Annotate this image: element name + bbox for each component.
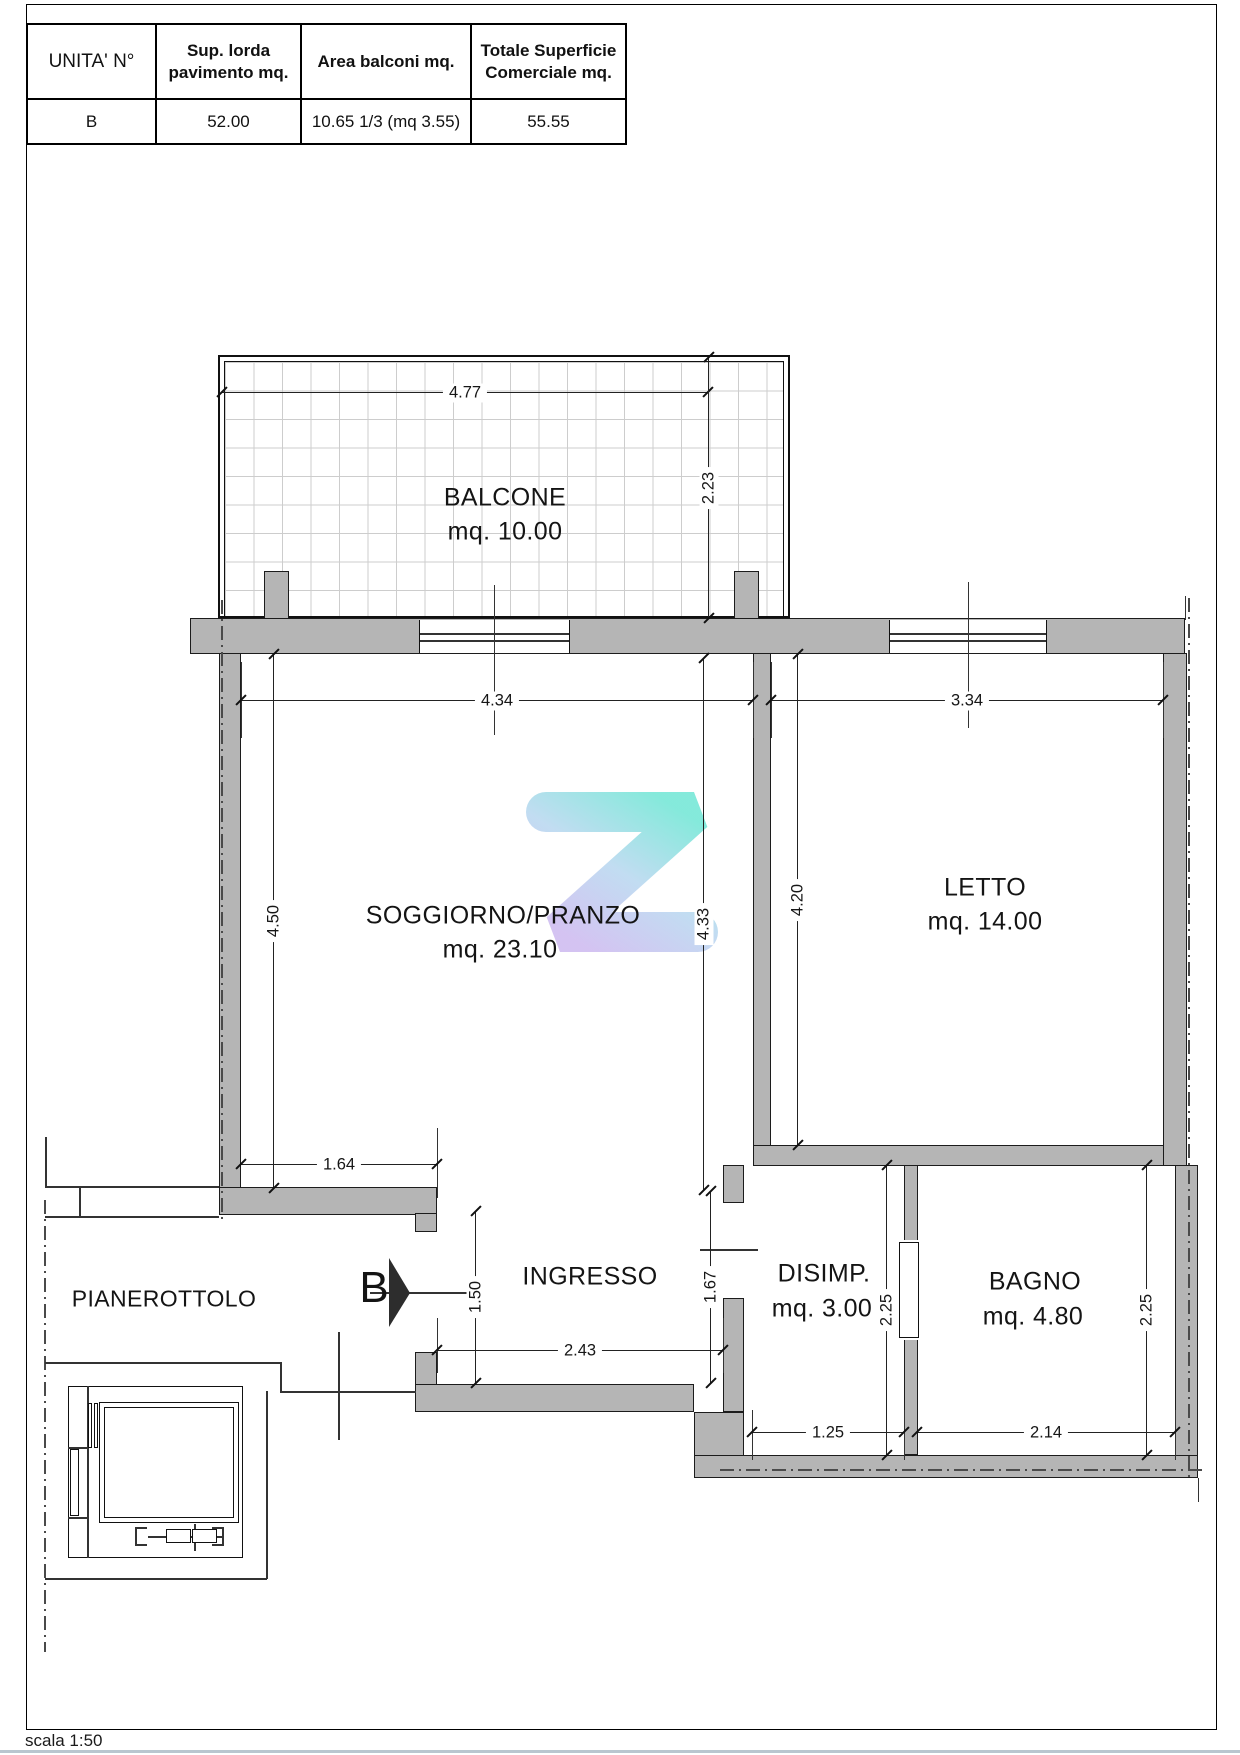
room-label-pianerottolo: PIANEROTTOLO xyxy=(72,1286,257,1313)
dim-soggiorno-height-right: 4.33 xyxy=(703,658,704,1190)
screen-bottom-edge xyxy=(0,1750,1240,1753)
dim-label-balcony-width: 4.77 xyxy=(443,383,487,402)
dim-bagno-width: 2.14 xyxy=(917,1432,1175,1433)
wall-soggiorno-south xyxy=(219,1187,437,1215)
table-data-row: B 52.00 10.65 1/3 (mq 3.55) 55.55 xyxy=(27,99,626,144)
dim-label-ingresso-width: 2.43 xyxy=(558,1341,602,1360)
cell-floor-area: 52.00 xyxy=(156,99,301,144)
elevator-shaft-left-tick-b xyxy=(68,1517,87,1519)
dim-label-ingresso-height: 1.67 xyxy=(701,1266,720,1308)
scale-note: scala 1:50 xyxy=(25,1731,103,1751)
col-header-floor-area: Sup. lorda pavimento mq. xyxy=(156,24,301,99)
elevator-bracket-right-bottom xyxy=(212,1544,224,1546)
dim-soggiorno-width: 4.34 xyxy=(241,700,753,701)
elevator-car-inner xyxy=(104,1407,234,1518)
dim-label-bagno-width: 2.14 xyxy=(1024,1423,1068,1442)
room-label-bagno: BAGNO xyxy=(989,1268,1081,1297)
elevator-rail-1 xyxy=(88,1403,92,1448)
cell-balcony-area: 10.65 1/3 (mq 3.55) xyxy=(301,99,471,144)
dim-label-bagno-height: 2.25 xyxy=(1137,1289,1156,1331)
dim-label-letto-width: 3.34 xyxy=(945,691,989,710)
ext-line-243-left xyxy=(437,1318,438,1373)
dim-label-balcony-depth: 2.23 xyxy=(699,466,718,508)
col-header-total-area: Totale Superficie Comerciale mq. xyxy=(471,24,626,99)
entrance-arrow-icon xyxy=(389,1258,410,1327)
dim-label-soggiorno-width: 4.34 xyxy=(475,691,519,710)
boundary-line-south xyxy=(720,1469,1205,1471)
dim-disimp-height: 2.25 xyxy=(886,1165,887,1455)
elevator-counterweight xyxy=(70,1449,79,1516)
wall-south xyxy=(694,1455,1198,1478)
dim-ingresso-width: 2.43 xyxy=(437,1350,723,1351)
room-label-ingresso: INGRESSO xyxy=(522,1263,657,1292)
elevator-door-panel-2 xyxy=(192,1529,217,1543)
boundary-line-east xyxy=(1188,598,1190,1482)
dim-label-soggiorno-height-left: 4.50 xyxy=(264,900,283,942)
dim-label-soggiorno-height-right: 4.33 xyxy=(694,903,713,945)
wall-step-corner xyxy=(694,1412,744,1456)
landing-edge-left-stub xyxy=(45,1137,47,1187)
dim-balcony-width: 4.77 xyxy=(222,392,708,393)
table-header-row: UNITA' N° Sup. lorda pavimento mq. Area … xyxy=(27,24,626,99)
dim-label-disimp-height: 2.25 xyxy=(877,1289,896,1331)
wall-letto-south xyxy=(753,1145,1187,1166)
landing-edge-top-b xyxy=(45,1216,219,1218)
cell-total-area: 55.55 xyxy=(471,99,626,144)
dim-label-disimp-width: 1.25 xyxy=(806,1423,850,1442)
dim-balcony-depth: 2.23 xyxy=(708,357,709,618)
dim-soggiorno-height-left: 4.50 xyxy=(273,654,274,1188)
dim-label-letto-height: 4.20 xyxy=(788,878,807,920)
boundary-line-landing xyxy=(44,1200,46,1652)
ext-line-125-right xyxy=(904,1410,905,1460)
wall-north xyxy=(190,618,1185,654)
dim-disimp-width: 1.25 xyxy=(752,1432,904,1433)
col-header-unit: UNITA' N° xyxy=(27,24,156,99)
corner-extension-ne xyxy=(1185,596,1186,620)
room-area-bagno: mq. 4.80 xyxy=(983,1303,1083,1332)
room-label-balcone: BALCONE xyxy=(444,484,566,513)
corner-extension-se xyxy=(1198,1478,1199,1502)
wall-east-upper xyxy=(1163,653,1187,1166)
cell-unit-id: B xyxy=(27,99,156,144)
wall-soggiorno-letto xyxy=(753,653,771,1166)
elevator-bracket-left-bottom xyxy=(135,1544,147,1546)
balcony-pillar-left xyxy=(264,571,289,619)
dim-letto-height: 4.20 xyxy=(797,654,798,1145)
ext-line-243-right xyxy=(723,1318,724,1373)
room-area-disimp: mq. 3.00 xyxy=(772,1295,872,1324)
room-label-letto: LETTO xyxy=(944,874,1026,903)
room-area-soggiorno: mq. 23.10 xyxy=(443,936,558,965)
landing-edge-top-a xyxy=(45,1186,219,1188)
bagno-door-leaf xyxy=(899,1242,919,1338)
wall-entrance-jamb-top xyxy=(415,1213,437,1232)
entrance-unit-label: B xyxy=(359,1263,388,1313)
wall-ingresso-south xyxy=(415,1384,694,1412)
landing-edge-bottom-a xyxy=(45,1362,280,1364)
dim-soggiorno-south-wall: 1.64 xyxy=(241,1164,437,1165)
room-label-soggiorno: SOGGIORNO/PRANZO xyxy=(366,902,640,931)
elevator-rail-2 xyxy=(94,1403,98,1448)
landing-step-vertical xyxy=(280,1362,282,1392)
elevator-bracket-left-top xyxy=(135,1527,147,1529)
dim-label-soggiorno-south-wall: 1.64 xyxy=(317,1155,361,1174)
landing-edge-bottom-b xyxy=(280,1391,416,1393)
ext-line-214-right xyxy=(1175,1410,1176,1460)
col-header-balcony-area: Area balconi mq. xyxy=(301,24,471,99)
dim-ingresso-height: 1.67 xyxy=(710,1191,711,1383)
shaft-room-wall-south xyxy=(45,1578,267,1580)
ext-line-125-left xyxy=(752,1410,753,1460)
dim-bagno-height: 2.25 xyxy=(1146,1165,1147,1455)
boundary-line-west xyxy=(221,600,223,1220)
room-area-letto: mq. 14.00 xyxy=(928,908,1043,937)
wall-disimp-west-upper xyxy=(723,1165,744,1203)
wall-east-lower xyxy=(1175,1165,1198,1478)
landing-door-swing-line xyxy=(338,1332,340,1440)
window-soggiorno-centerline xyxy=(494,585,495,735)
unit-summary-table: UNITA' N° Sup. lorda pavimento mq. Area … xyxy=(26,23,627,145)
room-area-balcone: mq. 10.00 xyxy=(448,518,563,547)
dim-entrance-opening: 1.50 xyxy=(475,1211,476,1383)
wall-disimp-west-lower xyxy=(723,1298,744,1412)
balcony-pillar-right xyxy=(734,571,759,619)
dim-label-entrance-opening: 1.50 xyxy=(466,1276,485,1318)
dim-letto-width: 3.34 xyxy=(771,700,1163,701)
landing-edge-divider xyxy=(79,1186,81,1217)
room-label-disimp: DISIMP. xyxy=(778,1260,871,1289)
elevator-bracket-right-top xyxy=(212,1527,224,1529)
shaft-room-wall-east xyxy=(266,1391,268,1579)
floorplan-sheet: UNITA' N° Sup. lorda pavimento mq. Area … xyxy=(0,0,1240,1755)
elevator-door-panel-1 xyxy=(166,1529,191,1543)
disimp-door-line xyxy=(700,1249,758,1251)
